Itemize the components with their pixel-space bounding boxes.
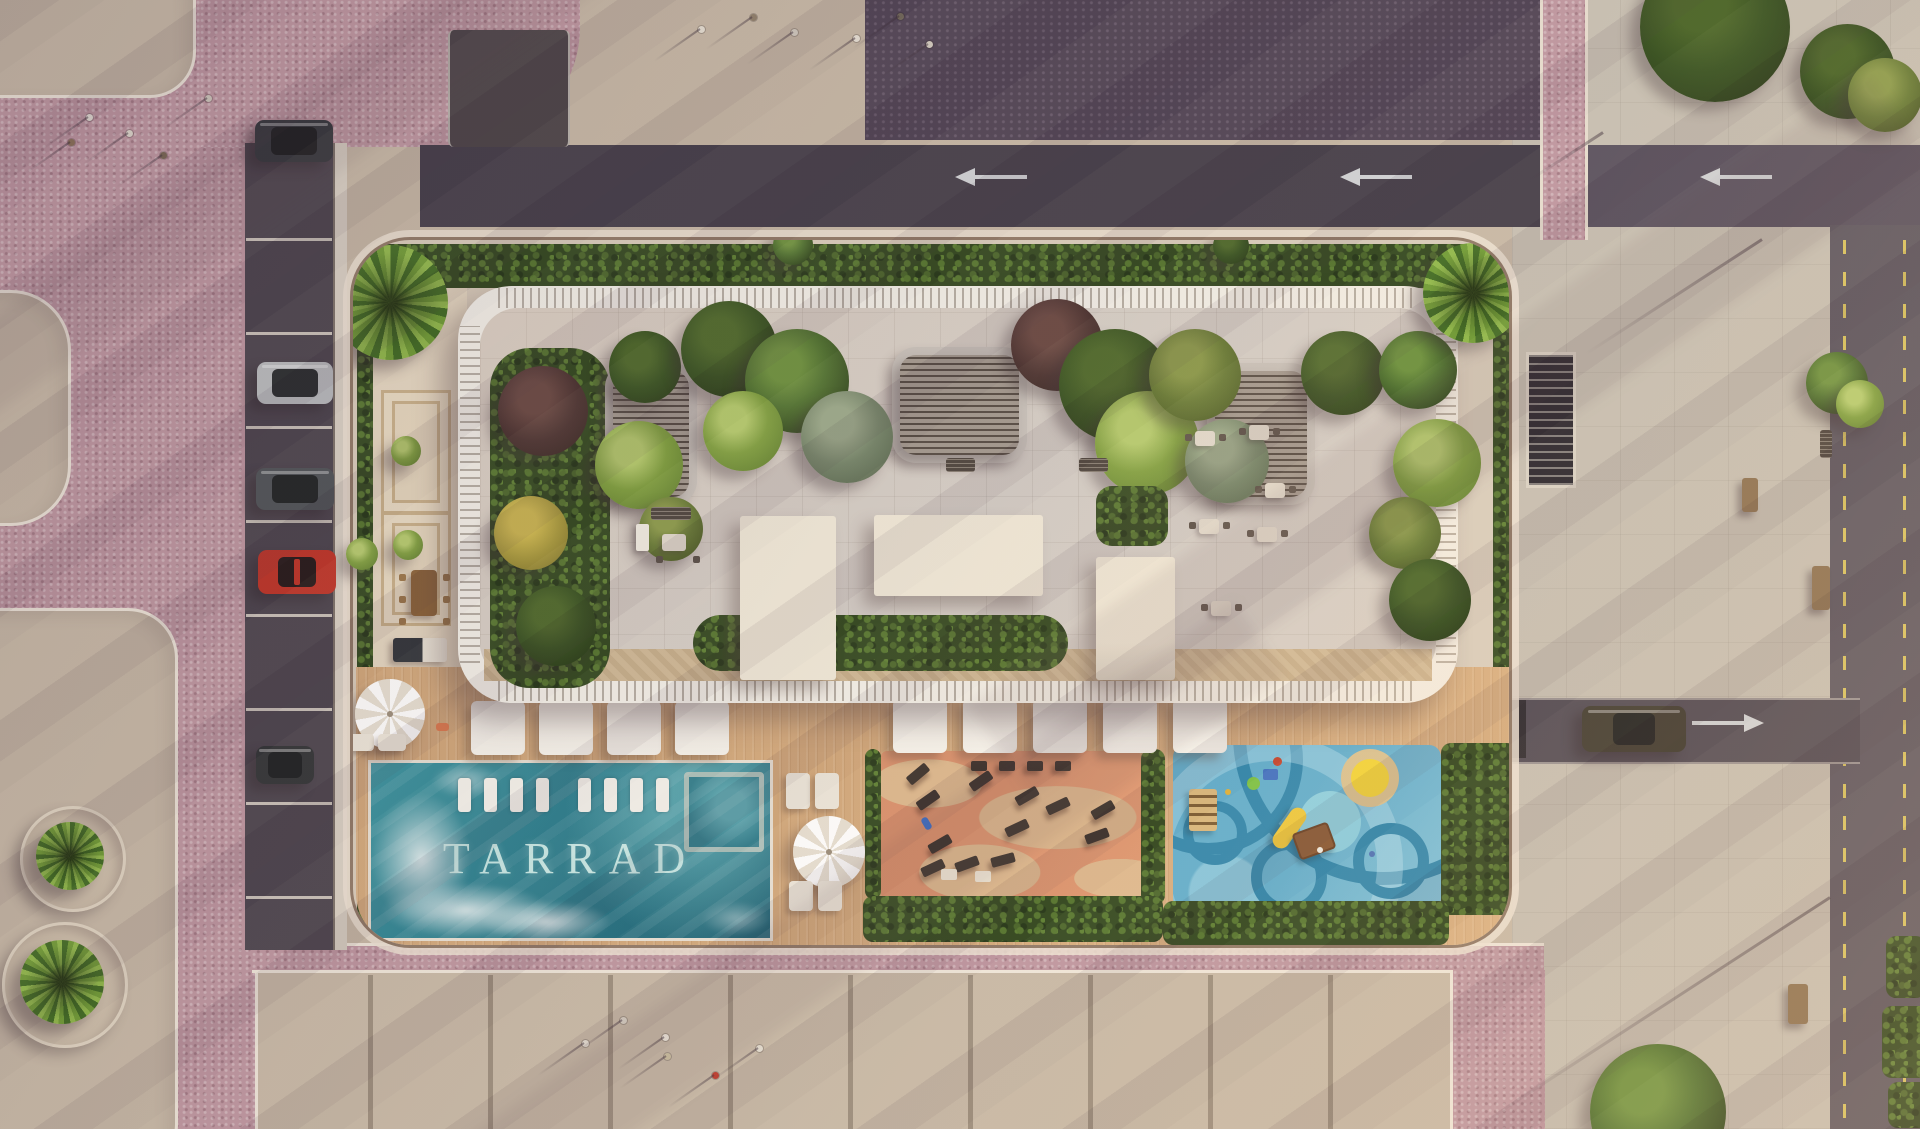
building-rooftop-plot: TARRAD <box>350 237 1512 948</box>
pavilion-light-overlay <box>458 286 1458 703</box>
outdoor-gym <box>881 751 1141 899</box>
gym-equipment <box>1055 761 1071 771</box>
sun-circle <box>1351 759 1389 797</box>
chair <box>443 596 450 603</box>
left-arrow-road-marking-icon <box>955 168 1029 186</box>
gym-equipment <box>915 789 940 811</box>
parking-curb <box>333 143 347 950</box>
gym-equipment <box>1027 761 1043 771</box>
gym-equipment <box>906 762 931 785</box>
gym-equipment <box>927 834 953 855</box>
tree-icon <box>1393 419 1481 507</box>
sun-shade-cabana <box>539 701 593 755</box>
chair <box>443 574 450 581</box>
aerial-render: TARRAD <box>0 0 1920 1129</box>
parking-stall-line <box>246 426 332 429</box>
parasol-icon <box>793 816 865 888</box>
sun-lounger <box>818 881 842 911</box>
sun-shade-cabana <box>675 701 729 755</box>
parked-car-silver <box>257 362 333 404</box>
parking-stall-line <box>246 614 332 617</box>
bbq-counter <box>393 638 447 662</box>
palm-tree-icon <box>20 940 104 1024</box>
driving-car <box>1582 706 1686 752</box>
sun-lounger <box>815 773 839 809</box>
perimeter-hedge <box>359 244 1509 288</box>
person-sunbathing <box>436 723 449 731</box>
swimming-pool: TARRAD <box>368 760 773 941</box>
parked-car-gray <box>256 468 334 510</box>
gym-hedge <box>865 749 881 899</box>
gym-equipment <box>1004 818 1030 837</box>
exercise-mat <box>975 871 991 882</box>
child <box>1317 847 1323 853</box>
playground-hedge <box>1441 743 1512 915</box>
left-arrow-road-marking-icon <box>1340 168 1414 186</box>
bench <box>1820 430 1832 458</box>
pedestrian <box>86 114 93 121</box>
play-block <box>1273 757 1282 766</box>
parking-stall-line <box>246 896 332 899</box>
paving-joint <box>488 975 493 1129</box>
tree-icon <box>1836 380 1884 428</box>
north-road-sunlit <box>1588 145 1920 227</box>
paving-joint <box>728 975 733 1129</box>
garage-exit-driveway <box>1512 698 1860 764</box>
pedestrian <box>664 1053 671 1060</box>
pedestrian <box>68 139 75 146</box>
parking-stall-line <box>246 802 332 805</box>
tree-icon <box>1389 559 1471 641</box>
gym-equipment <box>1084 827 1110 845</box>
plaza-island-midleft <box>0 290 71 526</box>
roadside-planting <box>1882 1006 1920 1078</box>
roadside-planting <box>1886 936 1920 998</box>
child <box>1369 851 1375 857</box>
palm-tree-icon <box>36 822 104 890</box>
tree-icon <box>1379 331 1457 409</box>
climbing-frame <box>1189 789 1217 831</box>
chair <box>399 618 406 625</box>
chair <box>399 596 406 603</box>
person-exercising <box>920 816 933 831</box>
shrub-icon <box>393 530 423 560</box>
parked-car-dark <box>256 746 314 784</box>
rooftop-pavilion <box>458 286 1458 703</box>
paving-joint <box>1208 975 1213 1129</box>
exercise-mat <box>941 869 957 880</box>
sun-shade-cabana <box>1173 699 1227 753</box>
left-arrow-road-marking-icon <box>1700 168 1774 186</box>
pedestrian <box>897 13 904 20</box>
parking-stall-line <box>246 520 332 523</box>
chair <box>399 574 406 581</box>
paving-joint <box>368 975 373 1129</box>
south-hedge <box>863 896 1163 942</box>
gym-equipment <box>971 761 987 771</box>
play-block <box>1263 769 1278 780</box>
paving-joint <box>1088 975 1093 1129</box>
pedestrian <box>205 95 212 102</box>
water-light-streaks <box>371 763 770 938</box>
bench <box>1812 566 1830 610</box>
gym-equipment <box>990 852 1016 868</box>
pedestrian <box>853 35 860 42</box>
south-hedge <box>1163 901 1449 945</box>
outdoor-dining-table <box>411 570 437 616</box>
pedestrian <box>791 29 798 36</box>
gym-equipment <box>1045 796 1071 815</box>
shrub-icon <box>391 436 421 466</box>
paving-joint <box>848 975 853 1129</box>
north-sidewalk-shaded <box>865 0 1555 140</box>
sun-lounger <box>350 734 374 751</box>
sun-shade-cabana <box>963 699 1017 753</box>
pedestrian <box>698 26 705 33</box>
gym-equipment <box>968 770 993 792</box>
right-arrow-road-marking-icon <box>1690 714 1764 732</box>
parked-car-red <box>258 550 336 594</box>
gym-hedge <box>1141 749 1165 905</box>
gym-equipment <box>1090 800 1116 821</box>
garage-vent-grille <box>1526 352 1576 488</box>
roadside-planting <box>1888 1082 1920 1128</box>
pedestrian <box>750 14 757 21</box>
pedestrian <box>160 152 167 159</box>
parking-stall-line <box>246 708 332 711</box>
child <box>1225 789 1231 795</box>
gym-equipment <box>999 761 1015 771</box>
sun-lounger <box>378 734 406 751</box>
playground-circle <box>1353 823 1429 899</box>
pedestrian <box>926 41 933 48</box>
tree-icon <box>346 538 378 570</box>
parking-stall-line <box>246 332 332 335</box>
pedestrian <box>126 130 133 137</box>
gym-equipment <box>1014 786 1040 807</box>
kids-playground <box>1173 745 1441 910</box>
chair <box>443 618 450 625</box>
east-crosswalk <box>1540 0 1588 240</box>
paving-joint <box>1328 975 1333 1129</box>
sun-lounger <box>789 881 813 911</box>
parking-lane <box>245 143 347 950</box>
play-ball <box>1247 777 1260 790</box>
tree-icon <box>1848 58 1920 132</box>
pedestrian <box>756 1045 763 1052</box>
bench <box>1788 984 1808 1024</box>
paving-joint <box>608 975 613 1129</box>
southeast-promenade-tail <box>1450 970 1545 1129</box>
parking-stall-line <box>246 238 332 241</box>
plaza-island-topleft <box>0 0 196 98</box>
pedestrian <box>662 1034 669 1041</box>
pedestrian <box>620 1017 627 1024</box>
sun-shade-cabana <box>607 701 661 755</box>
palm-tree-icon <box>1423 243 1512 343</box>
parked-car-dark <box>255 120 333 162</box>
sun-lounger <box>786 773 810 809</box>
bench <box>1742 478 1758 512</box>
sun-shade-cabana <box>1103 699 1157 753</box>
paving-joint <box>968 975 973 1129</box>
sun-shade-cabana <box>471 701 525 755</box>
parking-entrance <box>448 30 570 147</box>
sun-shade-cabana <box>1033 699 1087 753</box>
sun-shade-cabana <box>893 699 947 753</box>
